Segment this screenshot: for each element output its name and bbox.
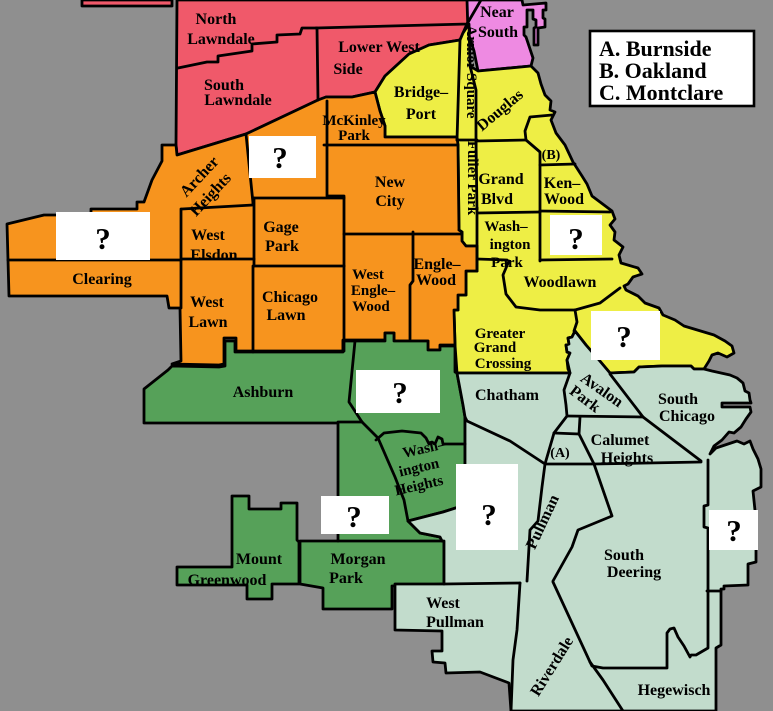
svg-text:ington: ington	[490, 237, 532, 253]
svg-text:South: South	[604, 547, 644, 564]
svg-text:Near: Near	[480, 4, 514, 21]
svg-text:Chatham: Chatham	[475, 387, 540, 404]
svg-text:Chicago: Chicago	[262, 289, 318, 306]
svg-text:?: ?	[616, 319, 632, 354]
svg-text:West: West	[426, 595, 460, 612]
svg-text:?: ?	[481, 497, 497, 532]
svg-text:Side: Side	[333, 61, 362, 78]
svg-text:City: City	[375, 193, 404, 210]
svg-text:Clearing: Clearing	[72, 271, 132, 288]
svg-text:West: West	[190, 294, 224, 311]
svg-text:New: New	[375, 174, 406, 191]
svg-text:West: West	[191, 227, 225, 244]
svg-text:Crossing: Crossing	[475, 356, 532, 372]
svg-text:Blvd: Blvd	[481, 191, 513, 208]
svg-text:Park: Park	[329, 570, 363, 587]
svg-text:South: South	[478, 24, 518, 41]
svg-text:West: West	[352, 267, 384, 283]
svg-text:Wood: Wood	[352, 299, 390, 315]
svg-text:Ken–: Ken–	[544, 175, 581, 192]
svg-text:Pullman: Pullman	[426, 614, 484, 631]
svg-text:Armor Square: Armor Square	[463, 25, 479, 119]
svg-text:Ashburn: Ashburn	[233, 384, 294, 401]
svg-text:?: ?	[568, 221, 584, 256]
svg-text:Mount: Mount	[236, 551, 283, 568]
svg-text:Lawndale: Lawndale	[187, 31, 255, 48]
svg-text:Calumet: Calumet	[591, 432, 650, 449]
svg-text:South: South	[658, 391, 698, 408]
svg-text:(B): (B)	[542, 148, 561, 163]
svg-text:(A): (A)	[550, 446, 570, 461]
svg-text:Greenwood: Greenwood	[188, 572, 267, 589]
svg-text:Engle–: Engle–	[351, 283, 396, 299]
svg-text:Park: Park	[338, 128, 370, 144]
svg-text:?: ?	[95, 221, 111, 256]
svg-text:Wash–: Wash–	[484, 219, 528, 235]
svg-text:Park: Park	[491, 255, 523, 271]
svg-text:?: ?	[392, 375, 408, 410]
svg-text:Fuller Park: Fuller Park	[464, 141, 480, 216]
svg-text:Lawndale: Lawndale	[204, 92, 272, 109]
svg-text:Bridge–: Bridge–	[394, 84, 449, 101]
svg-text:Deering: Deering	[607, 564, 661, 581]
svg-text:Wood: Wood	[416, 272, 456, 289]
svg-text:Grand: Grand	[474, 340, 517, 356]
svg-text:?: ?	[726, 513, 742, 548]
svg-text:Park: Park	[265, 238, 299, 255]
svg-text:Wood: Wood	[544, 191, 584, 208]
svg-text:North: North	[196, 11, 237, 28]
svg-text:Port: Port	[406, 106, 437, 123]
svg-text:Lawn: Lawn	[188, 314, 227, 331]
svg-text:Morgan: Morgan	[330, 551, 385, 568]
svg-text:Lower West: Lower West	[338, 39, 420, 56]
svg-text:Engle–: Engle–	[413, 256, 461, 273]
svg-text:Elsdon: Elsdon	[190, 247, 237, 264]
svg-text:C. Montclare: C. Montclare	[599, 80, 723, 105]
svg-text:Woodlawn: Woodlawn	[524, 274, 597, 291]
svg-text:Chicago: Chicago	[659, 408, 715, 425]
svg-text:Lawn: Lawn	[266, 307, 305, 324]
svg-text:McKinley: McKinley	[322, 113, 386, 129]
svg-text:Heights: Heights	[601, 450, 653, 467]
svg-text:Hegewisch: Hegewisch	[638, 682, 711, 699]
svg-text:?: ?	[272, 140, 288, 175]
svg-text:?: ?	[346, 499, 362, 534]
svg-text:Grand: Grand	[478, 171, 523, 188]
svg-text:Gage: Gage	[263, 219, 299, 236]
